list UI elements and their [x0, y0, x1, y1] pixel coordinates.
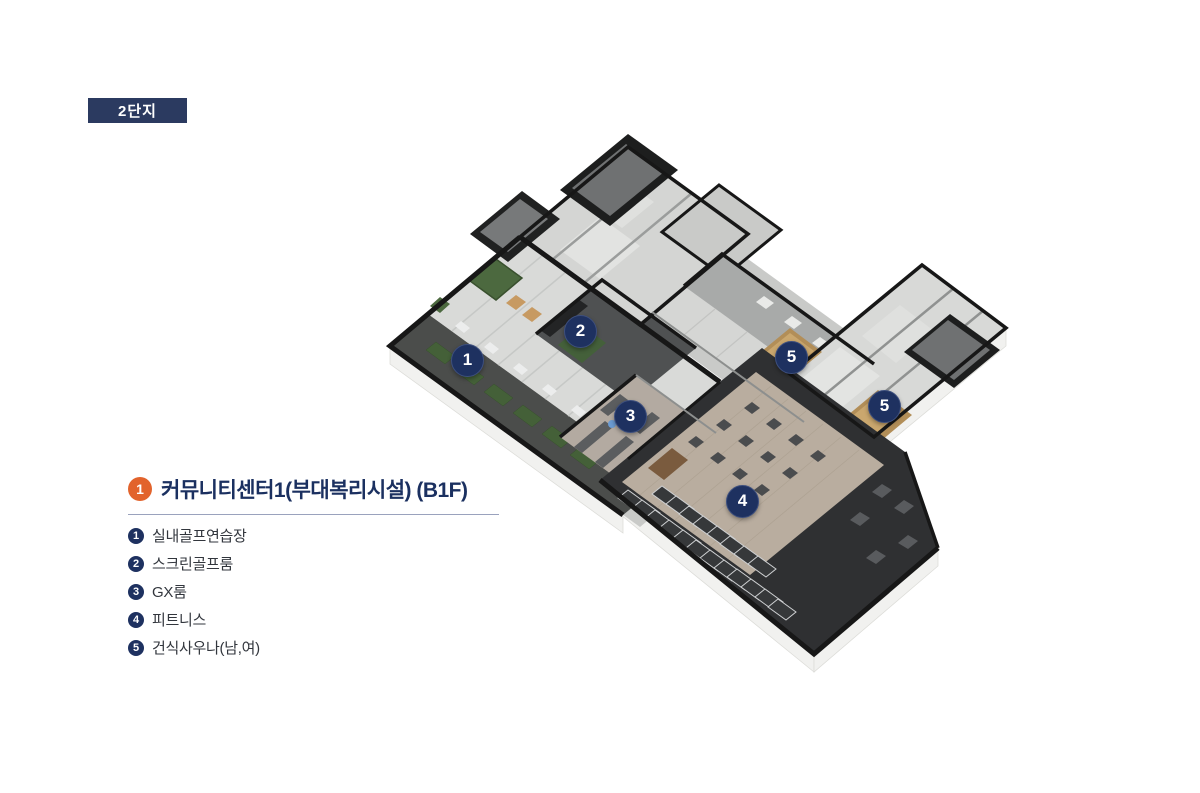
- legend-divider: [128, 514, 499, 515]
- plan-marker-2: 2: [564, 315, 597, 348]
- legend-item-bullet: 4: [128, 612, 144, 628]
- plan-marker-5: 5: [775, 341, 808, 374]
- legend-title-bullet: 1: [128, 477, 152, 501]
- legend-item: 2 스크린골프룸: [128, 553, 499, 574]
- legend-item: 5 건식사우나(남,여): [128, 637, 499, 658]
- legend-item-label: 스크린골프룸: [152, 553, 233, 574]
- floorplan-rendering: [0, 0, 1200, 793]
- plan-marker-1: 1: [451, 344, 484, 377]
- plan-marker-5: 5: [868, 390, 901, 423]
- page: 2단지: [0, 0, 1200, 793]
- legend-item-label: 실내골프연습장: [152, 525, 247, 546]
- legend-item-label: 피트니스: [152, 609, 206, 630]
- legend-item: 4 피트니스: [128, 609, 499, 630]
- legend-items: 1 실내골프연습장 2 스크린골프룸 3 GX룸 4 피트니스 5 건식사우나(…: [128, 525, 499, 658]
- legend-item: 3 GX룸: [128, 581, 499, 602]
- legend-title: 커뮤니티센터1(부대복리시설) (B1F): [161, 474, 468, 504]
- legend: 1 커뮤니티센터1(부대복리시설) (B1F) 1 실내골프연습장 2 스크린골…: [128, 474, 499, 658]
- legend-item-label: 건식사우나(남,여): [152, 637, 260, 658]
- legend-title-row: 1 커뮤니티센터1(부대복리시설) (B1F): [128, 474, 499, 504]
- legend-item-bullet: 3: [128, 584, 144, 600]
- plan-marker-4: 4: [726, 485, 759, 518]
- legend-item-bullet: 2: [128, 556, 144, 572]
- legend-item-bullet: 5: [128, 640, 144, 656]
- legend-item-bullet: 1: [128, 528, 144, 544]
- legend-item-label: GX룸: [152, 581, 187, 602]
- plan-marker-3: 3: [614, 400, 647, 433]
- legend-item: 1 실내골프연습장: [128, 525, 499, 546]
